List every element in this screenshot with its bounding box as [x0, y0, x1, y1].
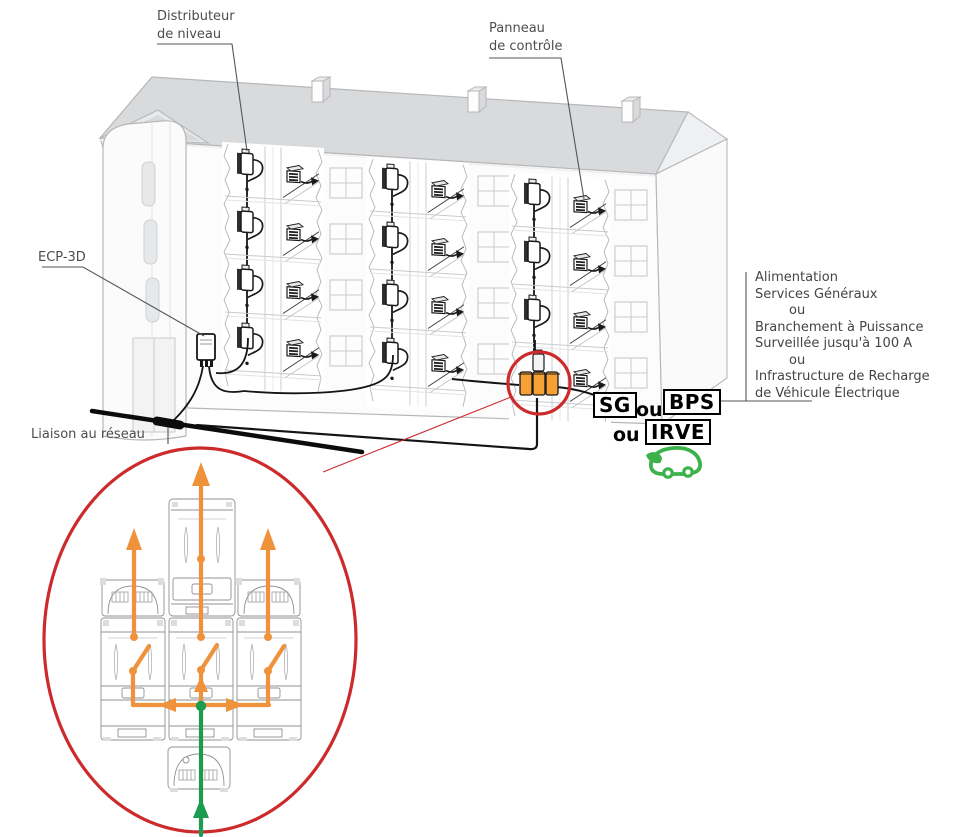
chimney	[622, 97, 640, 122]
supply-line: Branchement à Puissance	[755, 320, 930, 337]
supply-line-or: ou	[755, 303, 930, 320]
supply-line: Alimentation	[755, 270, 930, 287]
cable-junction	[157, 421, 180, 425]
bps-badge: BPS	[663, 389, 721, 415]
cutaway-column-1	[222, 142, 324, 398]
label-line: de contrôle	[489, 39, 562, 54]
network-link-label: Liaison au réseau	[31, 426, 145, 444]
end-wall	[656, 139, 727, 424]
zoom-detail	[44, 448, 356, 835]
sg-badge: SG	[593, 392, 637, 418]
supply-line: Services Généraux	[755, 287, 930, 304]
label-line: de niveau	[157, 27, 221, 42]
or-label-1: ou	[636, 399, 663, 421]
label-line: Panneau	[489, 21, 545, 36]
control-panel-label: Panneau de contrôle	[489, 20, 562, 56]
irve-badge: IRVE	[645, 419, 711, 445]
chimney	[312, 77, 330, 102]
supply-line-or: ou	[755, 353, 930, 370]
diagram-canvas: Distributeur de niveau Panneau de contrô…	[0, 0, 954, 837]
level-distributor-label: Distributeur de niveau	[157, 8, 235, 44]
ecp3d-label: ECP-3D	[38, 249, 86, 267]
building-illustration	[0, 0, 954, 837]
supply-line: Infrastructure de Recharge	[755, 369, 930, 386]
stair-tower	[103, 121, 186, 440]
ev-car-icon	[646, 448, 700, 477]
supply-line: de Véhicule Électrique	[755, 386, 930, 403]
chimney	[468, 87, 486, 112]
or-label-2: ou	[613, 424, 640, 446]
label-line: Distributeur	[157, 9, 235, 24]
supply-line: Surveillée jusqu'à 100 A	[755, 336, 930, 353]
supply-options-text: Alimentation Services Généraux ou Branch…	[755, 270, 930, 402]
cutaway-column-2	[367, 157, 469, 413]
